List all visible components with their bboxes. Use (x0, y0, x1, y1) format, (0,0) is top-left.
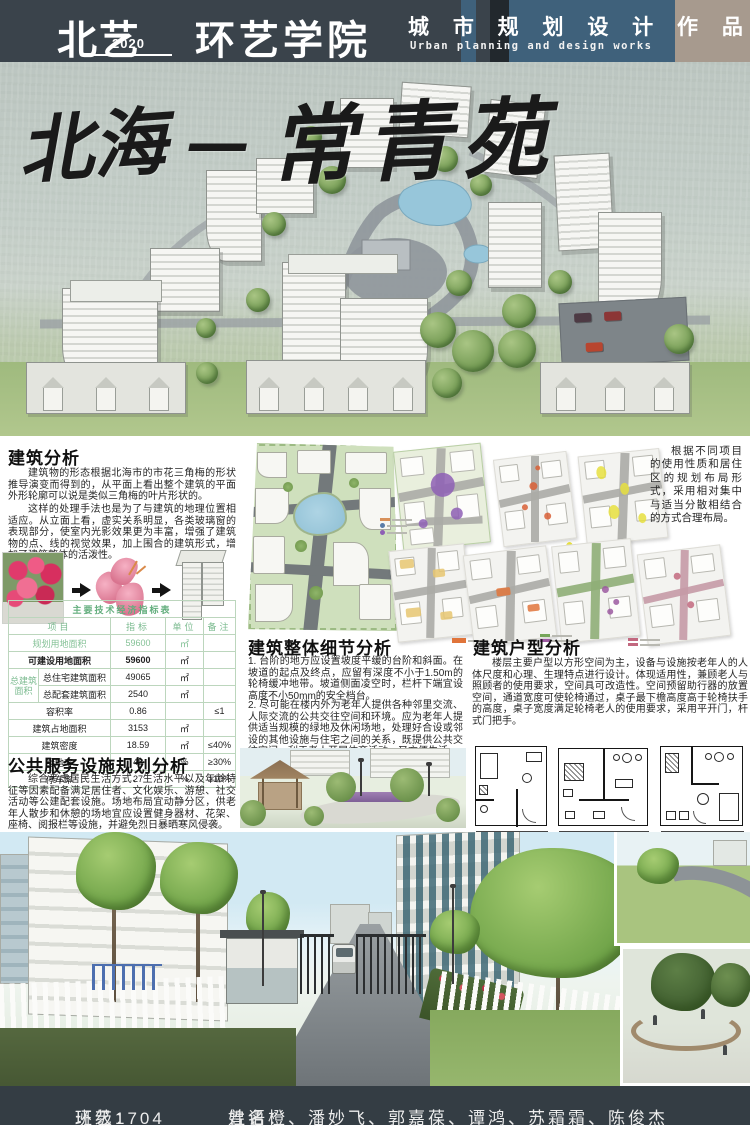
plan-fixture (564, 763, 584, 781)
legend-row (628, 643, 660, 646)
diagram-paper (637, 544, 732, 646)
project-title-dash: — (186, 105, 250, 180)
plan-cabinet (526, 752, 542, 762)
bush-icon (326, 772, 356, 802)
logo-underline (88, 54, 172, 56)
tree-icon (420, 312, 456, 348)
accent-dot (638, 512, 647, 523)
cell-note (204, 669, 236, 686)
tree-icon (196, 318, 216, 338)
accent-dot (620, 482, 630, 495)
plan-wall (603, 749, 605, 799)
overall-detail-p1: 1. 台阶的地方应设置坡度平缓的台阶和斜面。在坡道的起点及终点，应留有深度不小于… (248, 656, 463, 702)
person-figure (723, 1045, 727, 1055)
cell-note (204, 635, 236, 652)
accent-dot (521, 504, 528, 511)
bush-icon (436, 798, 460, 822)
legend-swatch (628, 638, 638, 641)
building-analysis-p1: 建筑物的形态根据北海市的市花三角梅的形状推导演变而得到的，从平面上看出整个建筑的… (8, 468, 236, 503)
diagram-accents (494, 452, 576, 546)
courtyard-vignette (240, 748, 466, 828)
diagram-accents (389, 544, 472, 641)
plan-wall (476, 799, 494, 801)
accent-dot (529, 481, 538, 490)
gable-unit (348, 387, 368, 411)
plan-door-arc (693, 811, 706, 824)
analysis-diagram-entries (463, 545, 558, 647)
col-header-note: 备注 (204, 618, 236, 635)
building-roof (288, 254, 398, 274)
legend-swatch (380, 530, 385, 535)
tree-icon (498, 330, 536, 368)
plan-bed (719, 793, 739, 821)
table-row: 可建设用地面积 59600 ㎡ (9, 652, 236, 669)
accent-dot (602, 586, 610, 594)
names-value: 曾语橙、潘妙飞、郭嘉葆、谭鸿、苏霜霜、陈俊杰 (228, 1104, 668, 1129)
cell-item: 规划用地面积 (9, 635, 111, 652)
tree-icon (664, 324, 694, 354)
cell-unit: ㎡ (166, 652, 204, 669)
table-row: 规划用地面积 59600 ㎡ (9, 635, 236, 652)
col-header-value: 指标 (111, 618, 166, 635)
foreground-lawn-left (0, 1028, 296, 1086)
cell-item: 总配套建筑面积 (39, 686, 111, 703)
cell-item: 容积率 (9, 703, 111, 720)
public-service-p1: 综合考虑居民生活方式、生活水平以及年龄特征等因素配备满足居住者、文化娱乐、游憩、… (8, 774, 236, 832)
cell-item: 总住宅建筑面积 (39, 669, 111, 686)
floor-plan-1 (475, 746, 547, 826)
plan-tree (295, 540, 307, 552)
legend-swatch (452, 638, 466, 643)
accent-dot (496, 587, 511, 597)
plan-chair (705, 753, 712, 760)
accent-dot (608, 505, 620, 520)
analysis-diagram-paths (637, 544, 732, 646)
logo-year: 2020 (112, 36, 145, 51)
legend-row (380, 530, 412, 535)
cell-unit: ㎡ (166, 686, 204, 703)
inset-building (713, 840, 747, 866)
person-figure (653, 1015, 657, 1025)
car-at-gate (332, 944, 356, 974)
cell-unit (166, 703, 204, 720)
plan-appliance (679, 811, 689, 820)
accent-dot (544, 513, 552, 521)
cell-item: 建筑密度 (9, 737, 111, 754)
plan-chair (727, 753, 734, 760)
plan-chair (613, 754, 620, 761)
plan-building (257, 452, 287, 478)
plan-building (345, 452, 387, 474)
tree-icon (432, 368, 462, 398)
plan-table (622, 753, 632, 763)
master-site-plan (248, 443, 398, 631)
plan-building (333, 542, 369, 586)
header-bar: 北艺 2020 环艺学院 城 市 规 划 设 计 作 品 Urban plann… (0, 0, 750, 62)
table-row: 总配套建筑面积 2540 ㎡ (9, 686, 236, 703)
legend-swatch (380, 518, 390, 521)
plan-door-arc (621, 807, 635, 821)
cell-value: 2540 (111, 686, 166, 703)
plaza-tree (651, 953, 715, 1011)
cell-unit: ㎡ (166, 669, 204, 686)
bush-icon (240, 800, 266, 826)
legend-swatch (628, 643, 638, 646)
accent-dot (433, 568, 446, 577)
rowhouse-strip (26, 362, 186, 414)
cell-note: ≤1 (204, 703, 236, 720)
plan-table (522, 773, 532, 783)
diagram-accents (464, 546, 556, 645)
gable-unit (654, 387, 674, 411)
tree-icon (548, 270, 572, 294)
cell-unit: ㎡ (166, 720, 204, 737)
accent-dot (535, 466, 541, 472)
plan-door-arc (522, 809, 536, 823)
plan-counter (563, 789, 573, 797)
gable-unit (259, 387, 279, 411)
floor-plan-3 (660, 746, 743, 826)
poster-category-en: Urban planning and design works (410, 40, 652, 52)
cell-note: ≤40% (204, 737, 236, 754)
accent-dot (607, 608, 614, 615)
plan-bed (480, 753, 498, 779)
diagram-paper (388, 543, 473, 642)
cell-value: 18.59 (111, 737, 166, 754)
diagram-legend (380, 518, 412, 537)
plan-pond (293, 492, 347, 536)
entrance-gate (300, 934, 334, 994)
cell-item: 建筑占地面积 (9, 720, 111, 737)
bush-icon (390, 768, 424, 802)
lamp-post (360, 762, 362, 796)
inset-tree (637, 848, 679, 884)
accent-dot (406, 607, 422, 618)
accent-dot (686, 601, 694, 609)
tree-icon (502, 294, 536, 328)
cell-value: 3153 (111, 720, 166, 737)
accent-dot (429, 472, 455, 498)
legend-row (628, 638, 660, 641)
diagram-accents (638, 545, 730, 644)
car-icon (574, 313, 591, 323)
accent-dot (450, 507, 463, 520)
cell-unit: ㎡ (166, 635, 204, 652)
building-analysis-heading: 建筑分析 (8, 444, 80, 469)
accent-dot (596, 465, 607, 479)
diagram-accents (552, 539, 640, 643)
lamp-post (428, 766, 430, 796)
street-lamp (452, 888, 454, 984)
cell-unit: ㎡ (166, 737, 204, 754)
inset-road-view (614, 832, 750, 946)
accent-dot (613, 598, 620, 605)
tree-icon (446, 270, 472, 296)
accent-dot (528, 603, 541, 611)
plan-tree (349, 478, 359, 488)
street-tree (76, 832, 156, 910)
gable-unit (96, 387, 116, 411)
plan-building (253, 536, 285, 574)
playground-equipment (92, 964, 162, 990)
car-icon (586, 342, 603, 352)
analysis-diagram-nodes (493, 451, 577, 547)
plan-wall (691, 747, 693, 783)
diagram-legend (628, 638, 660, 648)
hero-aerial-rendering: 北海 — 常青苑 (0, 62, 750, 436)
plan-appliance (593, 811, 605, 819)
floor-plan-2 (558, 748, 648, 826)
diagram-paper (463, 545, 558, 647)
gable-unit (556, 387, 576, 411)
legend-label (387, 532, 407, 534)
analysis-diagram-circulation (551, 538, 641, 644)
tree-icon (246, 288, 270, 312)
department-name: 环艺学院 (195, 8, 371, 62)
unit-analysis-p1: 楼层主要户型以方形空间为主，设备与设施按老年人的人体尺度和心理、生理特点进行设计… (472, 658, 748, 728)
plan-wall (516, 789, 518, 827)
poster-category-cn: 城 市 规 划 设 计 作 品 (408, 11, 750, 41)
gazebo-post (296, 778, 298, 808)
plan-fixture (479, 785, 488, 795)
entrance-street-rendering (0, 832, 750, 1086)
building-block (488, 202, 542, 288)
table-row: 建筑密度 18.59 ㎡ ≤40% (9, 737, 236, 754)
building-roof (70, 280, 162, 302)
plan-fixture (665, 753, 679, 773)
street-lamp (262, 894, 264, 986)
tree-icon (262, 212, 286, 236)
plan-sofa (615, 779, 633, 788)
legend-label (392, 519, 412, 521)
entrance-gate (356, 934, 426, 994)
gable-unit (43, 387, 63, 411)
plan-building (359, 584, 391, 620)
footer-bar: 班级：环艺1704 姓名：曾语橙、潘妙飞、郭嘉葆、谭鸿、苏霜霜、陈俊杰 (0, 1086, 750, 1125)
table-row: 总建筑面积 总住宅建筑面积 49065 ㎡ (9, 669, 236, 686)
plaza-tree (711, 963, 750, 1007)
cell-item: 可建设用地面积 (9, 652, 111, 669)
car-icon (604, 311, 621, 321)
cell-note (204, 652, 236, 669)
table-row: 容积率 0.86 ≤1 (9, 703, 236, 720)
cell-note: ≥30% (204, 754, 236, 771)
rowhouse-strip (540, 362, 690, 414)
plan-table (697, 793, 709, 805)
plan-building (255, 584, 293, 622)
inset-plaza-view (620, 946, 750, 1086)
accent-dot (673, 572, 681, 580)
col-header-unit: 单位 (166, 618, 204, 635)
plan-wall (691, 783, 719, 785)
gable-unit (304, 387, 324, 411)
unit-analysis-heading: 建筑户型分析 (473, 634, 581, 659)
plan-building (255, 488, 289, 524)
car-windshield (336, 948, 353, 957)
project-title-right: 常青苑 (267, 67, 559, 202)
diagram-paper (493, 451, 577, 547)
cell-note (204, 720, 236, 737)
plan-toilet (480, 805, 488, 813)
cell-note (204, 686, 236, 703)
legend-label (640, 644, 660, 646)
tree-icon (196, 362, 218, 384)
analysis-diagram-sunlight (388, 543, 473, 642)
cell-value: 0.86 (111, 703, 166, 720)
accent-dot (399, 559, 414, 569)
class-value: 环艺1704 (75, 1104, 165, 1129)
poster-root: 北艺 2020 环艺学院 城 市 规 划 设 计 作 品 Urban plann… (0, 0, 750, 1125)
legend-row (380, 518, 412, 521)
plan-tree (283, 482, 293, 492)
legend-label (640, 639, 660, 641)
table-row: 建筑占地面积 3153 ㎡ (9, 720, 236, 737)
col-header-item: 项目 (9, 618, 111, 635)
plan-chair (635, 754, 642, 761)
gable-unit (393, 387, 413, 411)
table-title: 主要技术经济指标表 (9, 601, 236, 618)
legend-label (387, 525, 407, 527)
plan-tree (309, 586, 323, 600)
street-tree (160, 842, 238, 914)
plan-appliance (666, 811, 676, 820)
person-figure (701, 1009, 705, 1019)
tree-icon (452, 330, 494, 372)
gable-unit (149, 387, 169, 411)
accent-dot (418, 518, 428, 528)
project-title: 北海 — 常青苑 (18, 72, 638, 197)
cell-value: 59600 (111, 652, 166, 669)
cell-value: 59600 (111, 635, 166, 652)
bush-icon (304, 806, 324, 826)
legend-swatch (380, 523, 385, 528)
accent-dot (440, 611, 453, 620)
plan-table (714, 752, 724, 762)
cell-group-label: 总建筑面积 (9, 669, 39, 703)
plan-appliance (565, 811, 575, 819)
street-tree (430, 910, 480, 954)
layout-note: 根据不同项目的使用性质和居住区的规划布局形式，采用相对集中与适当分散相结合的方式… (650, 445, 742, 525)
project-title-left: 北海 (14, 82, 169, 199)
rowhouse-strip (246, 360, 426, 414)
diagram-paper (551, 538, 641, 644)
legend-row (380, 523, 412, 528)
gable-unit (605, 387, 625, 411)
cell-value: 49065 (111, 669, 166, 686)
plan-wall (579, 799, 629, 801)
plan-building (297, 450, 331, 474)
